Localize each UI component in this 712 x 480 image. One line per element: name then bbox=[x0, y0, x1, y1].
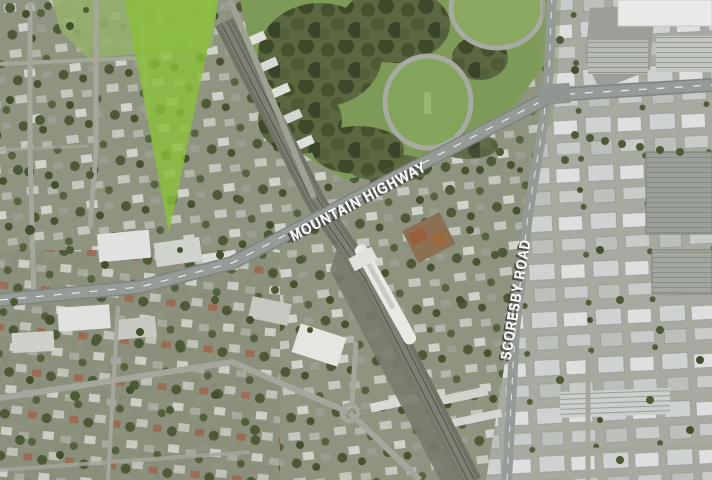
highway-intersection bbox=[537, 83, 570, 105]
aerial-map-svg: MOUNTAIN HIGHWAY MOUNTAIN HIGHWAY SCORES… bbox=[0, 0, 712, 480]
sports-oval-south bbox=[385, 56, 471, 148]
aerial-map-image[interactable]: MOUNTAIN HIGHWAY MOUNTAIN HIGHWAY SCORES… bbox=[0, 0, 712, 480]
